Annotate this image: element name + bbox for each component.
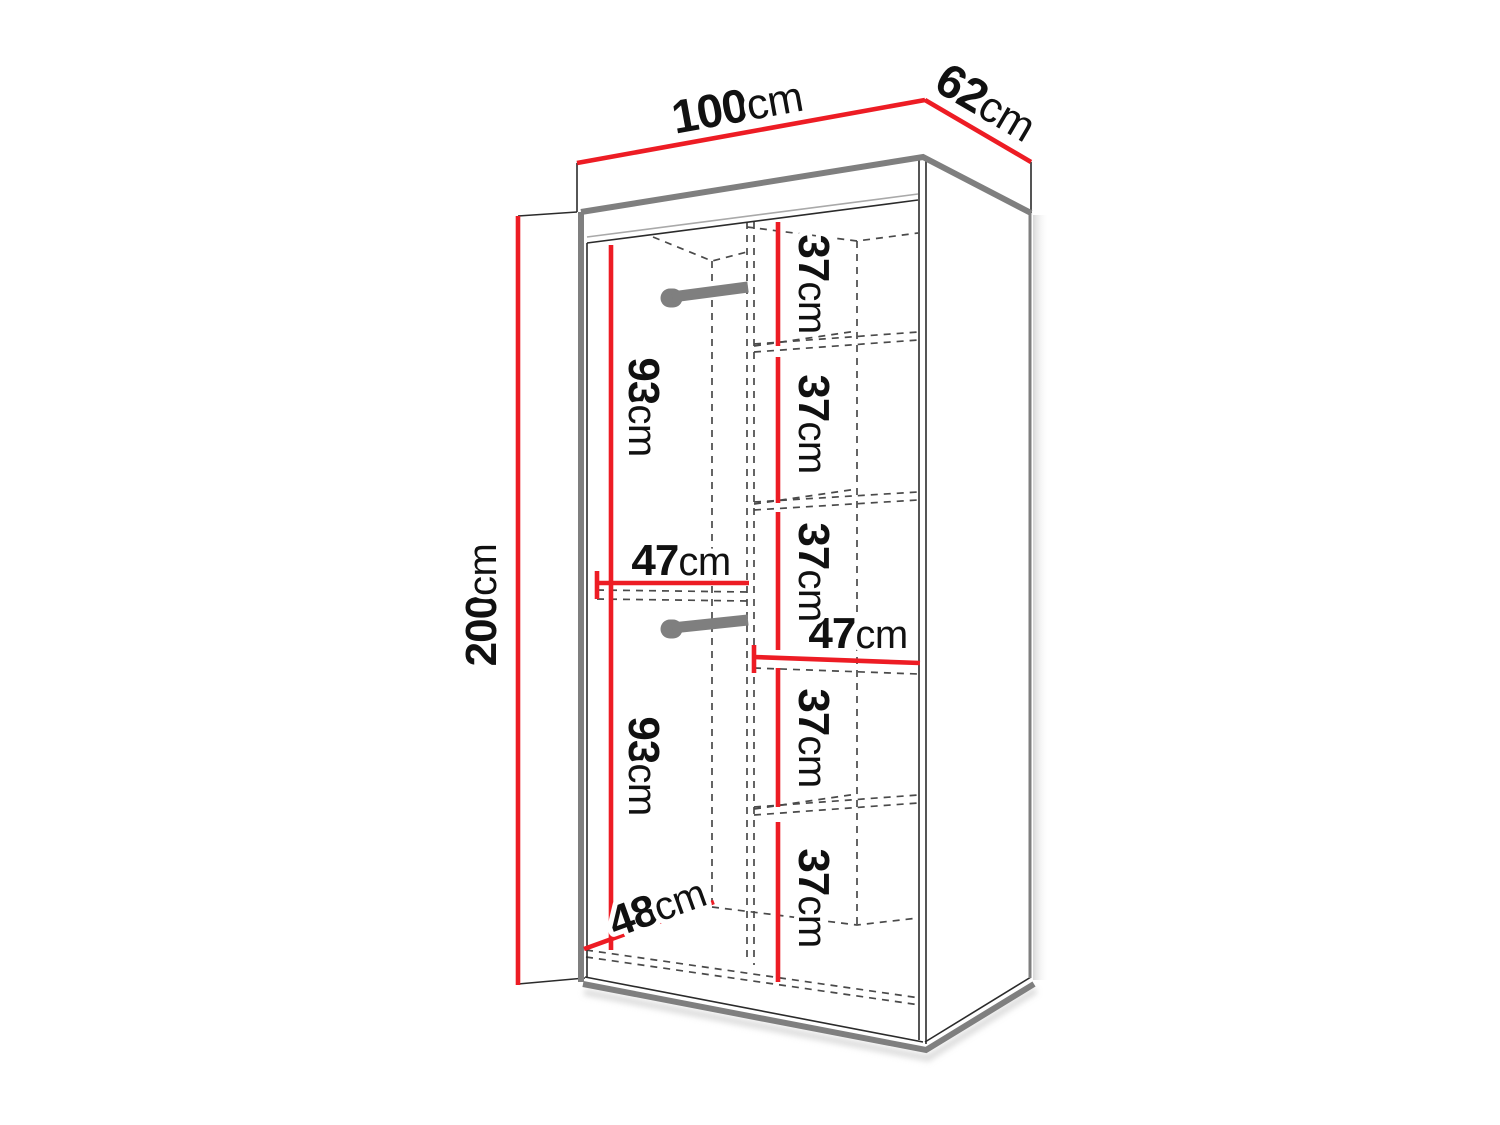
top-panel-bottom-edge xyxy=(581,157,1031,213)
diagram-canvas: 100cm 62cm 200cm 93cm 93cm 47cm 47cm 48c… xyxy=(0,0,1500,1125)
label-shelf-spacing-2: 37cm xyxy=(789,374,838,473)
hanging-rod-lower xyxy=(670,620,748,629)
rod-bar xyxy=(672,287,748,297)
bottom-side-edge xyxy=(925,977,1031,1042)
label-shelf-spacing-1: 37cm xyxy=(789,234,838,333)
label-lower-hanging-height: 93cm xyxy=(619,716,668,815)
label-interior-depth: 48cm xyxy=(602,867,712,947)
height-extension-bottom xyxy=(518,978,585,984)
hanging-rod-upper xyxy=(670,287,748,298)
dimension-lines xyxy=(518,100,1031,985)
label-shelf-spacing-5: 37cm xyxy=(789,848,838,947)
label-total-width: 100cm xyxy=(667,68,806,144)
label-shelf-spacing-4: 37cm xyxy=(789,688,838,787)
left-shelf-edges xyxy=(597,590,748,601)
ceiling-left-edges xyxy=(653,237,747,261)
right-edge-shadow xyxy=(1033,215,1049,980)
label-total-height: 200cm xyxy=(457,544,506,667)
label-upper-hanging-height: 93cm xyxy=(619,357,668,456)
height-extension-top xyxy=(518,212,577,216)
bottom-front-edge xyxy=(585,977,923,1042)
interior-ceiling-edge xyxy=(587,200,918,243)
wardrobe-dimension-diagram: 100cm 62cm 200cm 93cm 93cm 47cm 47cm 48c… xyxy=(0,0,1500,1125)
label-shelf-spacing-3: 37cm xyxy=(789,522,838,621)
label-left-section-width: 47cm xyxy=(631,536,730,585)
rod-bar xyxy=(672,620,748,628)
